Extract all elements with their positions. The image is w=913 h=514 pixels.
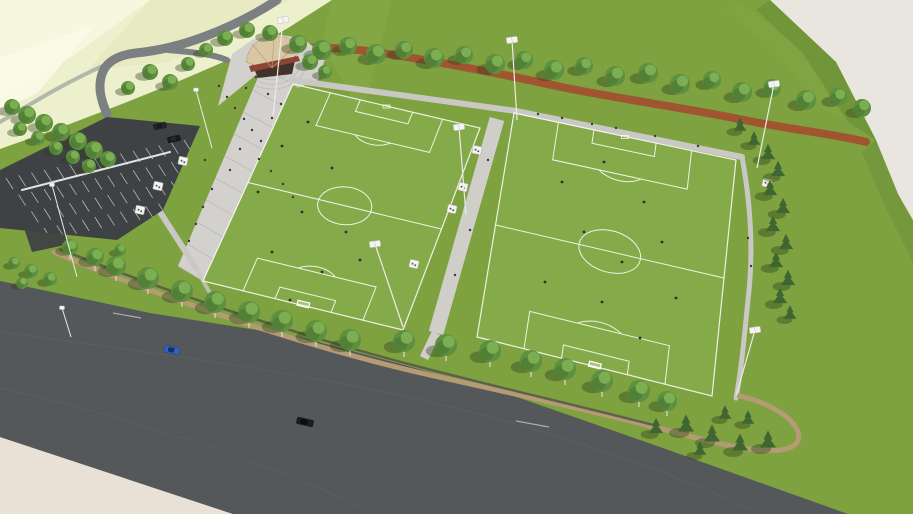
person-figure: [270, 170, 272, 172]
person-figure: [243, 118, 245, 120]
player-figure: [603, 161, 606, 164]
person-figure: [267, 93, 269, 95]
site-rendering: [0, 0, 913, 514]
player-figure: [561, 181, 564, 184]
person-figure: [245, 87, 247, 89]
shade-shelter: [178, 156, 188, 166]
person-figure: [697, 145, 699, 147]
person-figure: [537, 113, 539, 115]
floodlight-head: [506, 36, 518, 43]
player-figure: [281, 145, 284, 148]
shade-shelter: [447, 204, 457, 214]
person-figure: [454, 274, 456, 276]
player-figure: [643, 201, 646, 204]
shade-shelter: [153, 181, 163, 191]
person-figure: [239, 148, 241, 150]
player-figure: [331, 167, 334, 170]
person-figure: [469, 229, 471, 231]
person-figure: [202, 206, 204, 208]
shade-shelter: [409, 259, 419, 269]
player-figure: [583, 231, 586, 234]
person-figure: [229, 169, 231, 171]
person-figure: [195, 223, 197, 225]
person-figure: [211, 188, 213, 190]
player-figure: [359, 259, 362, 262]
player-figure: [271, 251, 274, 254]
player-figure: [257, 191, 260, 194]
floodlight-head: [277, 16, 289, 23]
player-figure: [345, 231, 348, 234]
person-figure: [226, 96, 228, 98]
floodlight-head: [749, 326, 761, 333]
person-figure: [251, 129, 253, 131]
player-figure: [301, 211, 304, 214]
player-figure: [661, 241, 664, 244]
player-figure: [544, 281, 547, 284]
person-figure: [292, 196, 294, 198]
player-figure: [289, 299, 292, 302]
person-figure: [271, 117, 273, 119]
person-figure: [258, 158, 260, 160]
player-figure: [601, 301, 604, 304]
person-figure: [747, 237, 749, 239]
person-figure: [234, 107, 236, 109]
shade-shelter: [472, 145, 482, 155]
floodlight-head: [369, 240, 381, 247]
person-figure: [487, 159, 489, 161]
person-figure: [615, 127, 617, 129]
person-figure: [280, 103, 282, 105]
player-figure: [321, 271, 324, 274]
person-figure: [218, 85, 220, 87]
person-figure: [255, 76, 257, 78]
shade-shelter: [135, 205, 145, 215]
person-figure: [260, 140, 262, 142]
person-figure: [204, 159, 206, 161]
floodlight-head: [768, 80, 780, 87]
person-figure: [561, 117, 563, 119]
person-figure: [591, 123, 593, 125]
render-canvas: [0, 0, 913, 514]
person-figure: [750, 265, 752, 267]
person-figure: [188, 240, 190, 242]
player-figure: [621, 261, 624, 264]
player-figure: [639, 337, 642, 340]
person-figure: [654, 135, 656, 137]
floodlight-head: [453, 123, 465, 130]
player-figure: [307, 121, 310, 124]
person-figure: [282, 183, 284, 185]
player-figure: [675, 297, 678, 300]
